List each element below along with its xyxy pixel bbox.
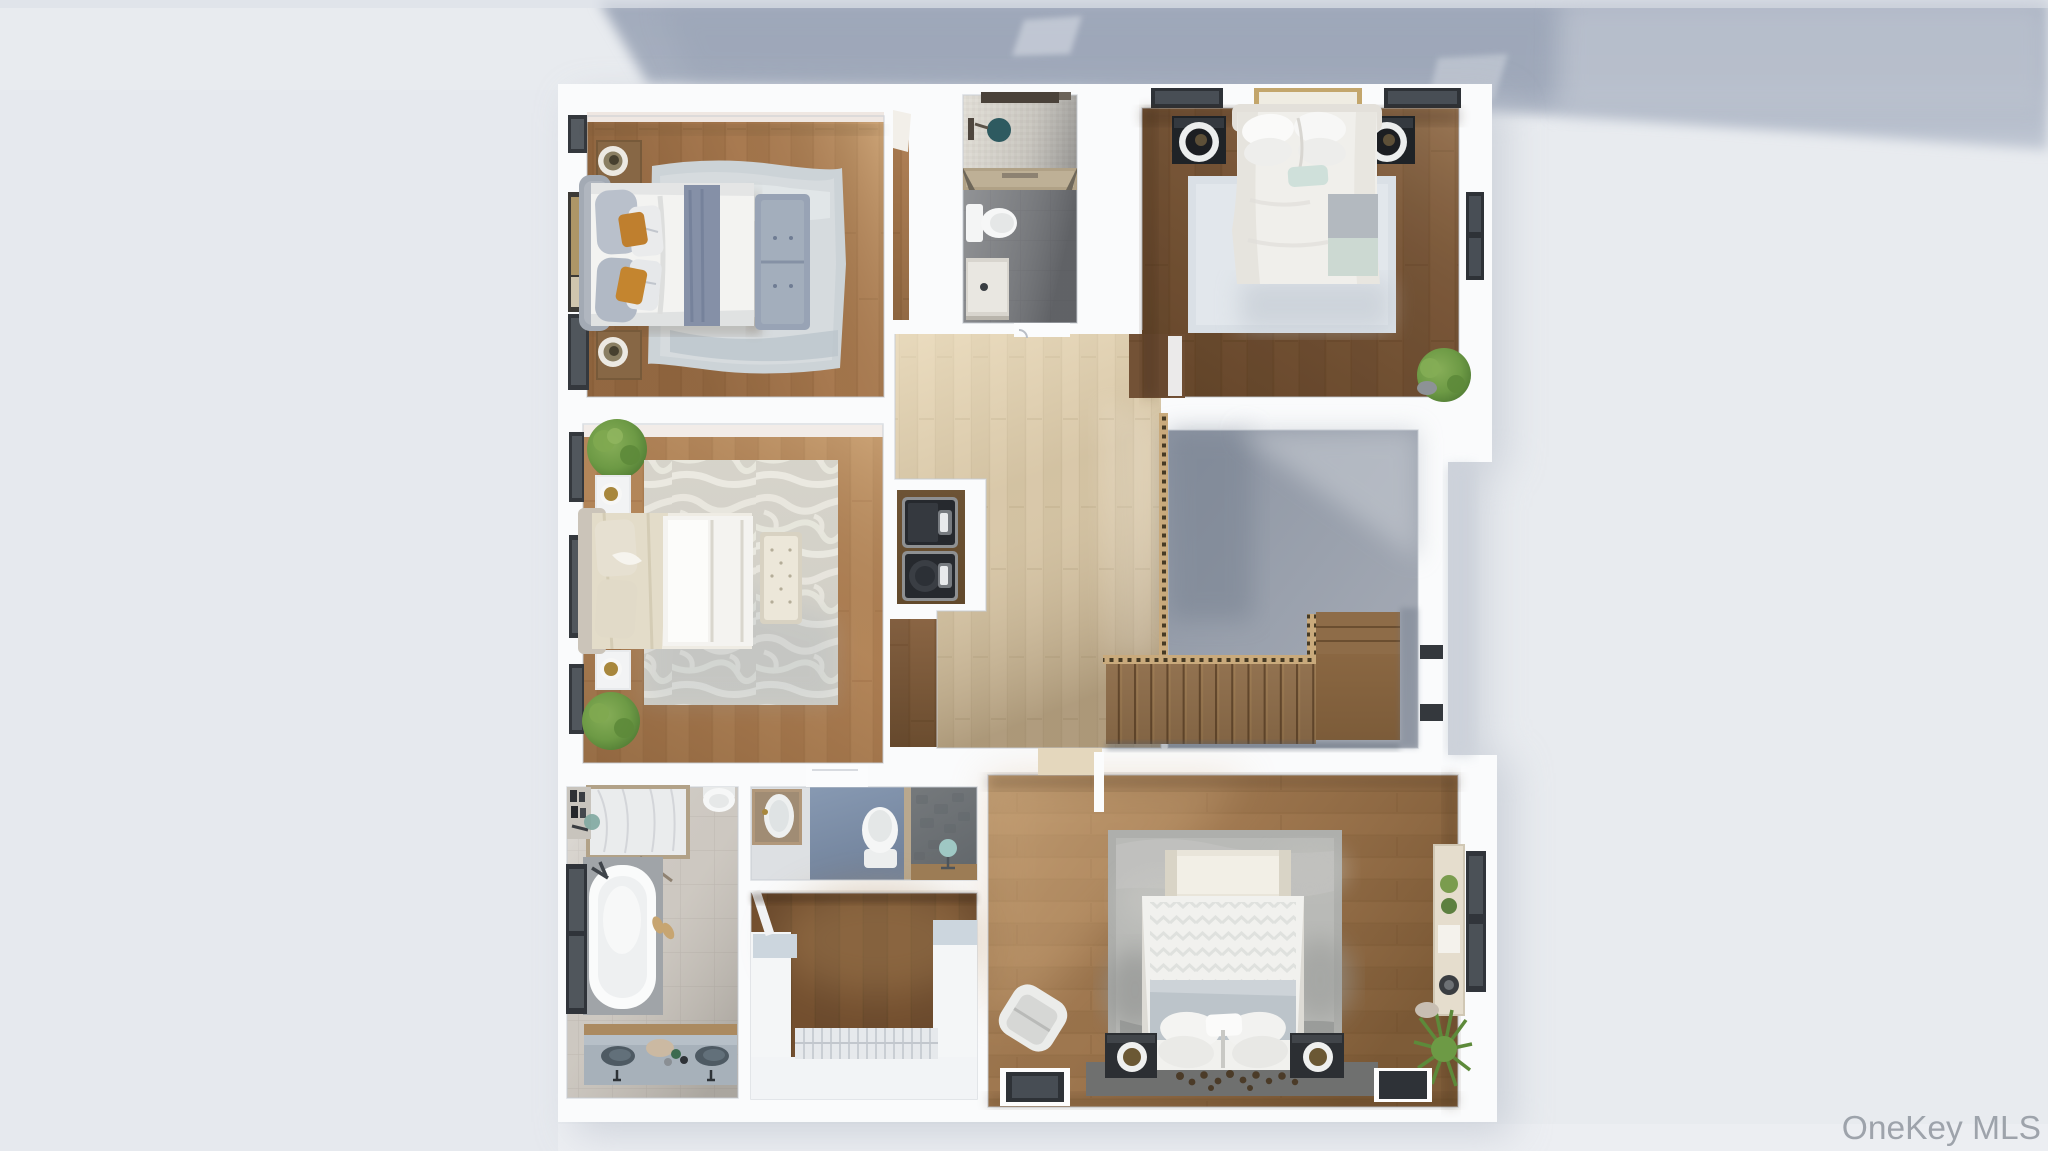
svg-text:OneKey MLS: OneKey MLS <box>1842 1110 2041 1147</box>
